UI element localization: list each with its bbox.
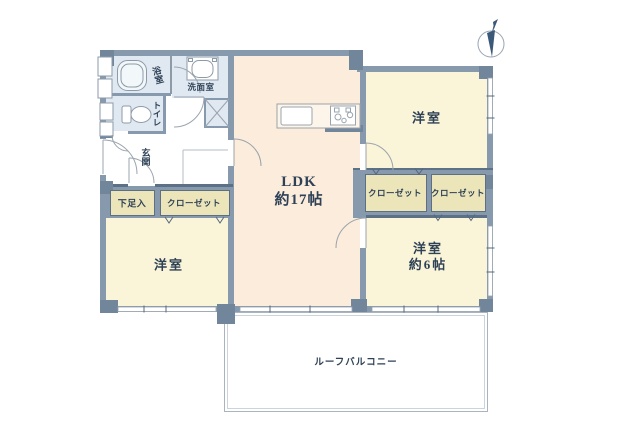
- bedroom-bottom-left-label: 洋室: [154, 255, 184, 274]
- bedroom-br-name: 洋室: [413, 241, 443, 256]
- meter-boxes: [98, 57, 113, 136]
- closet-right-a-label: クローゼット: [368, 187, 422, 199]
- hall-step-lines: [183, 150, 228, 184]
- ldk-size: 約17帖: [274, 192, 323, 208]
- washroom-label: 洗面室: [187, 81, 214, 93]
- shoe-cupboard-label: 下足入: [118, 197, 147, 210]
- bathtub-icon: [118, 61, 147, 91]
- pipe-space-cross-icon: [205, 99, 229, 127]
- washing-machine-icon: [187, 57, 218, 80]
- bedroom-br-size: 約6帖: [409, 257, 448, 272]
- toilet-label: トイレ: [151, 101, 163, 127]
- entrance-label: 玄関: [140, 148, 153, 166]
- closet-right-b-label: クローゼット: [431, 187, 485, 199]
- bedroom-bottom-right-label: 洋室 約6帖: [409, 241, 448, 274]
- floorplan-canvas: 浴室 洗面室 トイレ 玄関 下足入 クローゼット 洋室 LDK 約17帖 洋室 …: [0, 0, 640, 432]
- bedroom-top-right-label: 洋室: [412, 108, 442, 127]
- ldk-name: LDK: [281, 174, 317, 190]
- compass-icon: [478, 19, 504, 57]
- kitchen-counter-icon: [277, 104, 360, 128]
- roof-balcony-label: ルーフバルコニー: [314, 354, 397, 368]
- toilet-icon: [122, 106, 151, 123]
- ldk-label: LDK 約17帖: [274, 173, 323, 209]
- closet-bottom-left-label: クローゼット: [167, 197, 221, 209]
